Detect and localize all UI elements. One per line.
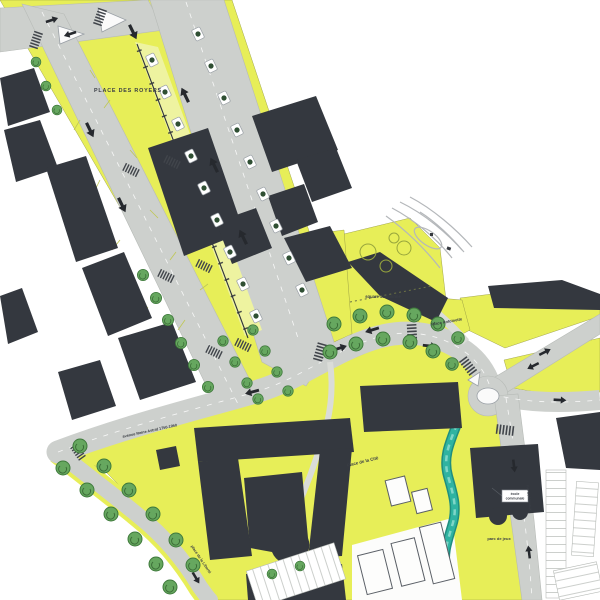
label-parc-de-jeux: parc de jeux [487,536,511,541]
tree-symbol [407,308,421,322]
urban-plan-map: école communale PLACE DES ROYERS square … [0,0,600,600]
tree-symbol [188,359,199,370]
tree-symbol [267,569,277,579]
tree-symbol [260,346,271,357]
tree-symbol [452,332,465,345]
tree-symbol [446,358,459,371]
building-apse [512,504,528,520]
tree-symbol [230,357,241,368]
tree-symbol [353,309,367,323]
tree-symbol [137,269,148,280]
tree-symbol [128,532,142,546]
tree-symbol [41,81,51,91]
tree-symbol [169,533,183,547]
tree-symbol [376,332,390,346]
tree-symbol [323,345,337,359]
tree-symbol [283,386,294,397]
tree-symbol [150,292,161,303]
sketch-mark [430,233,433,236]
tree-symbol [272,367,283,378]
tree-symbol [380,305,394,319]
tree-symbol [146,507,160,521]
tree-symbol [162,314,173,325]
site-plan-canvas: école communale PLACE DES ROYERS square … [0,0,600,600]
label-place-des-royers: PLACE DES ROYERS [94,88,162,94]
tree-symbol [202,381,213,392]
tree-symbol [80,483,94,497]
tree-symbol [253,394,264,405]
tree-symbol [52,105,62,115]
tree-symbol [295,561,305,571]
tree-symbol [426,344,440,358]
tree-symbol [149,557,163,571]
tree-symbol [218,336,229,347]
tree-symbol [104,507,118,521]
tree-symbol [122,483,136,497]
note-text-line2: communale [506,497,525,501]
small-structure [403,274,411,282]
note-text-line1: école [511,492,520,496]
label-square-jamblinne: square Jamblinne [365,294,401,299]
tree-symbol [175,337,186,348]
building-apse [489,507,507,525]
tree-symbol [163,580,177,594]
tree-symbol [97,459,111,473]
tree-symbol [327,317,341,331]
tree-symbol [31,57,41,67]
roundabout-island [477,388,499,404]
tree-symbol [248,325,259,336]
tree-symbol [349,337,363,351]
tree-symbol [186,558,200,572]
building [156,446,180,470]
tree-symbol [73,439,87,453]
tree-symbol [242,378,253,389]
building [360,382,462,432]
tree-symbol [403,335,417,349]
tree-symbol [56,461,70,475]
